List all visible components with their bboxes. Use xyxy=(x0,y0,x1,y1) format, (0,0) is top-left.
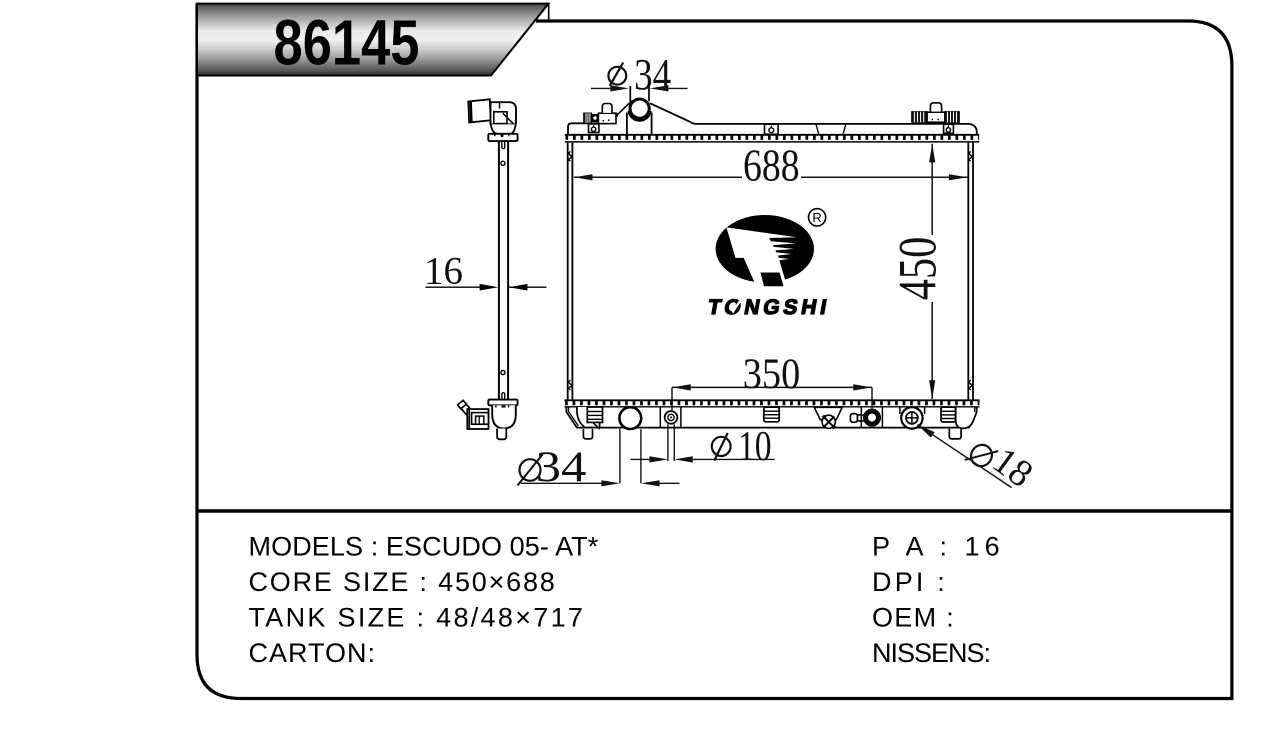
svg-text:18: 18 xyxy=(985,439,1040,495)
svg-text:34: 34 xyxy=(634,50,671,99)
svg-text:MODELS : ESCUDO 05- AT*: MODELS : ESCUDO 05- AT* xyxy=(249,532,599,562)
svg-text:R: R xyxy=(812,210,821,225)
svg-text:86145: 86145 xyxy=(274,8,420,79)
svg-text:OEM :: OEM : xyxy=(872,603,955,633)
svg-text:CARTON:: CARTON: xyxy=(249,638,377,668)
svg-text:P A : 16: P A : 16 xyxy=(872,532,1005,562)
svg-text:16: 16 xyxy=(424,250,463,293)
svg-text:CORE SIZE : 450×688: CORE SIZE : 450×688 xyxy=(249,567,557,597)
svg-text:DPI :: DPI : xyxy=(872,567,948,597)
svg-text:350: 350 xyxy=(743,350,800,398)
svg-text:NISSENS:: NISSENS: xyxy=(872,638,990,668)
svg-text:TANK SIZE : 48/48×717: TANK SIZE : 48/48×717 xyxy=(249,603,586,633)
svg-text:TONGSHI: TONGSHI xyxy=(706,296,832,319)
svg-text:450: 450 xyxy=(889,237,948,301)
svg-text:688: 688 xyxy=(743,141,800,191)
svg-text:10: 10 xyxy=(738,424,772,470)
svg-text:34: 34 xyxy=(536,444,587,492)
